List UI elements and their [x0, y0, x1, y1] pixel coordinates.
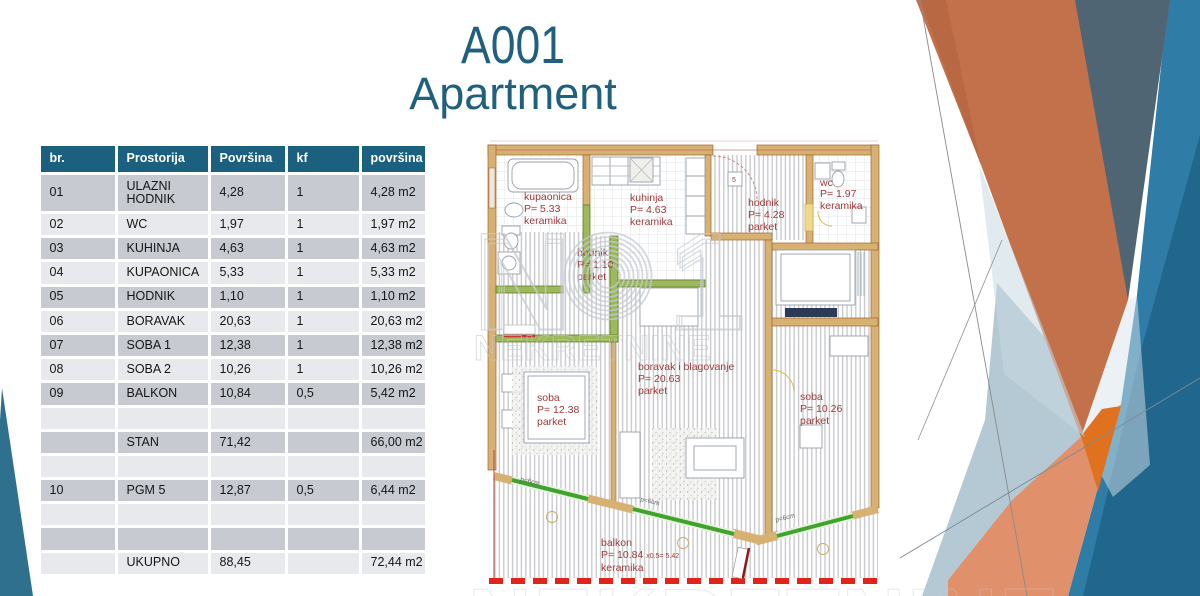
svg-text:P= 4.28: P= 4.28: [748, 209, 785, 221]
svg-text:parket: parket: [537, 416, 566, 428]
svg-text:parket: parket: [638, 385, 667, 397]
svg-text:parket: parket: [748, 221, 777, 233]
svg-text:P= 12.38: P= 12.38: [537, 404, 579, 416]
svg-text:hodnik: hodnik: [748, 197, 780, 209]
svg-text:parket: parket: [800, 415, 829, 427]
svg-text:kuhinja: kuhinja: [630, 192, 663, 204]
svg-text:P= 20.63: P= 20.63: [638, 373, 680, 385]
svg-text:keramika: keramika: [630, 216, 673, 228]
svg-text:soba: soba: [800, 391, 823, 403]
svg-text:soba: soba: [537, 392, 560, 404]
svg-text:NEKRETNINE: NEKRETNINE: [474, 329, 712, 368]
svg-text:P= 1.97: P= 1.97: [820, 188, 857, 200]
svg-text:keramika: keramika: [820, 200, 863, 212]
svg-text:balkon: balkon: [601, 537, 632, 549]
svg-text:5: 5: [732, 177, 736, 184]
svg-text:kupaonica: kupaonica: [524, 191, 572, 203]
svg-text:P= 10.26: P= 10.26: [800, 403, 842, 415]
svg-text:NEKRETNINE: NEKRETNINE: [468, 570, 1060, 596]
svg-text:P= 4.63: P= 4.63: [630, 204, 667, 216]
